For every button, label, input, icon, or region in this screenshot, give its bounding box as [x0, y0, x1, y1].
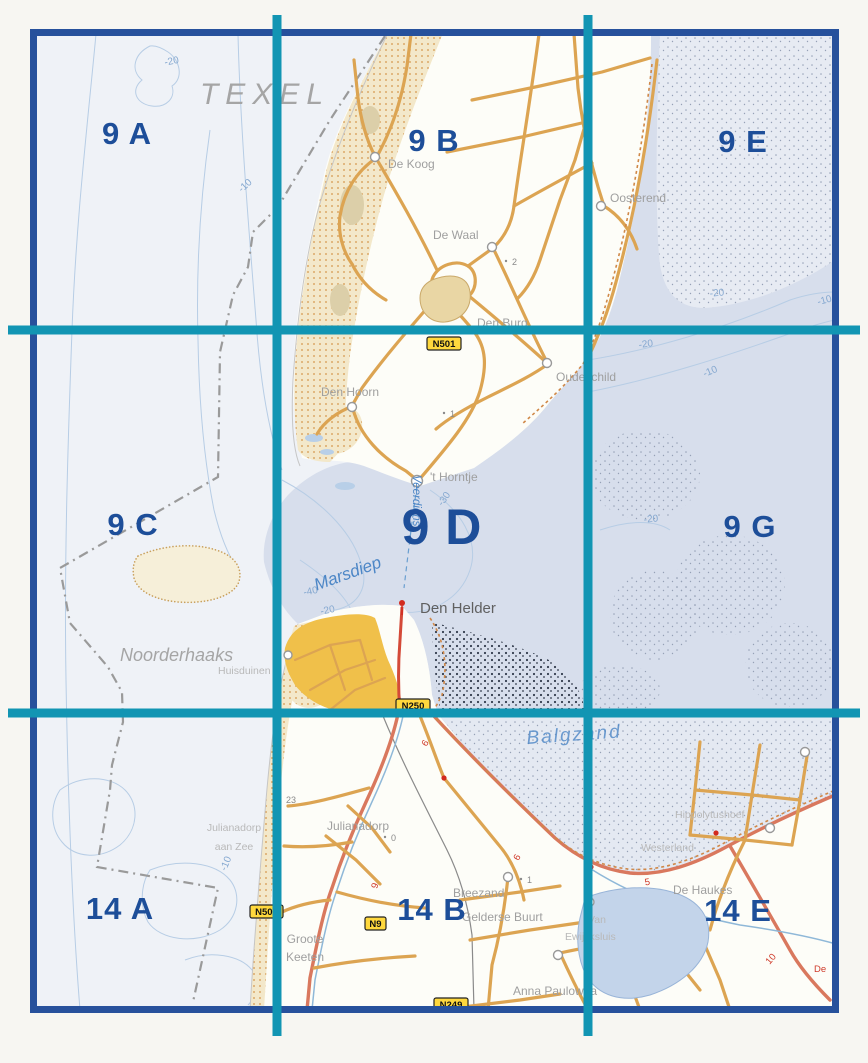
town-label-julianadorp-aan-zee-1: Julianadorp [207, 822, 261, 834]
svg-text:23: 23 [286, 795, 296, 805]
svg-text:1: 1 [527, 875, 532, 885]
svg-text:-20: -20 [643, 513, 659, 525]
svg-text:N9: N9 [369, 919, 381, 930]
town-label-t-horntje: 't Horntje [430, 470, 478, 484]
svg-text:1: 1 [450, 409, 455, 419]
town-label-groote-keeten-1: Groote [287, 932, 324, 946]
grid-line-vertical-2 [584, 15, 593, 1036]
map-index-page: TEXEL Noorderhaaks Marsdiep Balgzand Vee… [0, 0, 868, 1063]
town-label-hippolytushoef: Hippolytushoef [675, 809, 745, 821]
region-label-noorderhaaks: Noorderhaaks [120, 645, 233, 665]
town-label-de-koog: De Koog [388, 157, 435, 171]
sheet-label-9e: 9 E [718, 124, 768, 159]
grid-line-horizontal-1 [8, 326, 860, 335]
svg-text:De: De [814, 964, 826, 975]
grid-line-vertical-1 [273, 15, 282, 1036]
town-label-gelderse-buurt: Gelderse Buurt [462, 910, 543, 924]
sheet-label-14a: 14 A [86, 891, 154, 926]
town-label-westerland: Westerland [641, 842, 694, 854]
town-label-oosterend: Oosterend [610, 191, 666, 205]
sheet-label-9a: 9 A [102, 116, 152, 151]
town-label-den-helder: Den Helder [420, 600, 496, 617]
town-label-huisduinen: Huisduinen [218, 665, 271, 677]
town-label-groote-keeten-2: Keeten [286, 950, 324, 964]
svg-text:2: 2 [512, 257, 517, 267]
map-sheet-index: TEXEL Noorderhaaks Marsdiep Balgzand Vee… [0, 0, 868, 1063]
tidal-flat-9e-dots [645, 33, 835, 308]
sheet-label-9g: 9 G [724, 509, 777, 544]
svg-text:N501: N501 [433, 339, 456, 350]
noorderhaaks-sandbar [133, 546, 240, 603]
harbor-marker [399, 600, 405, 606]
region-label-texel: TEXEL [200, 78, 330, 111]
town-label-julianadorp-aan-zee-2: aan Zee [215, 841, 254, 853]
sheet-label-9b: 9 B [408, 123, 459, 158]
town-label-de-waal: De Waal [433, 228, 479, 242]
town-label-den-hoorn: Den Hoorn [321, 385, 379, 399]
sheet-label-14e: 14 E [704, 893, 772, 928]
svg-text:-20: -20 [709, 287, 725, 299]
shield-n501: N501 [427, 337, 461, 350]
town-label-julianadorp: Julianadorp [327, 819, 389, 833]
shield-n9: N9 [365, 917, 386, 930]
svg-text:0: 0 [391, 833, 396, 843]
grid-line-horizontal-2 [8, 709, 860, 718]
svg-text:-20: -20 [638, 338, 654, 351]
sheet-label-9c: 9 C [107, 507, 158, 542]
sheet-label-14b: 14 B [397, 892, 466, 927]
sheet-label-9d: 9 D [402, 499, 483, 555]
